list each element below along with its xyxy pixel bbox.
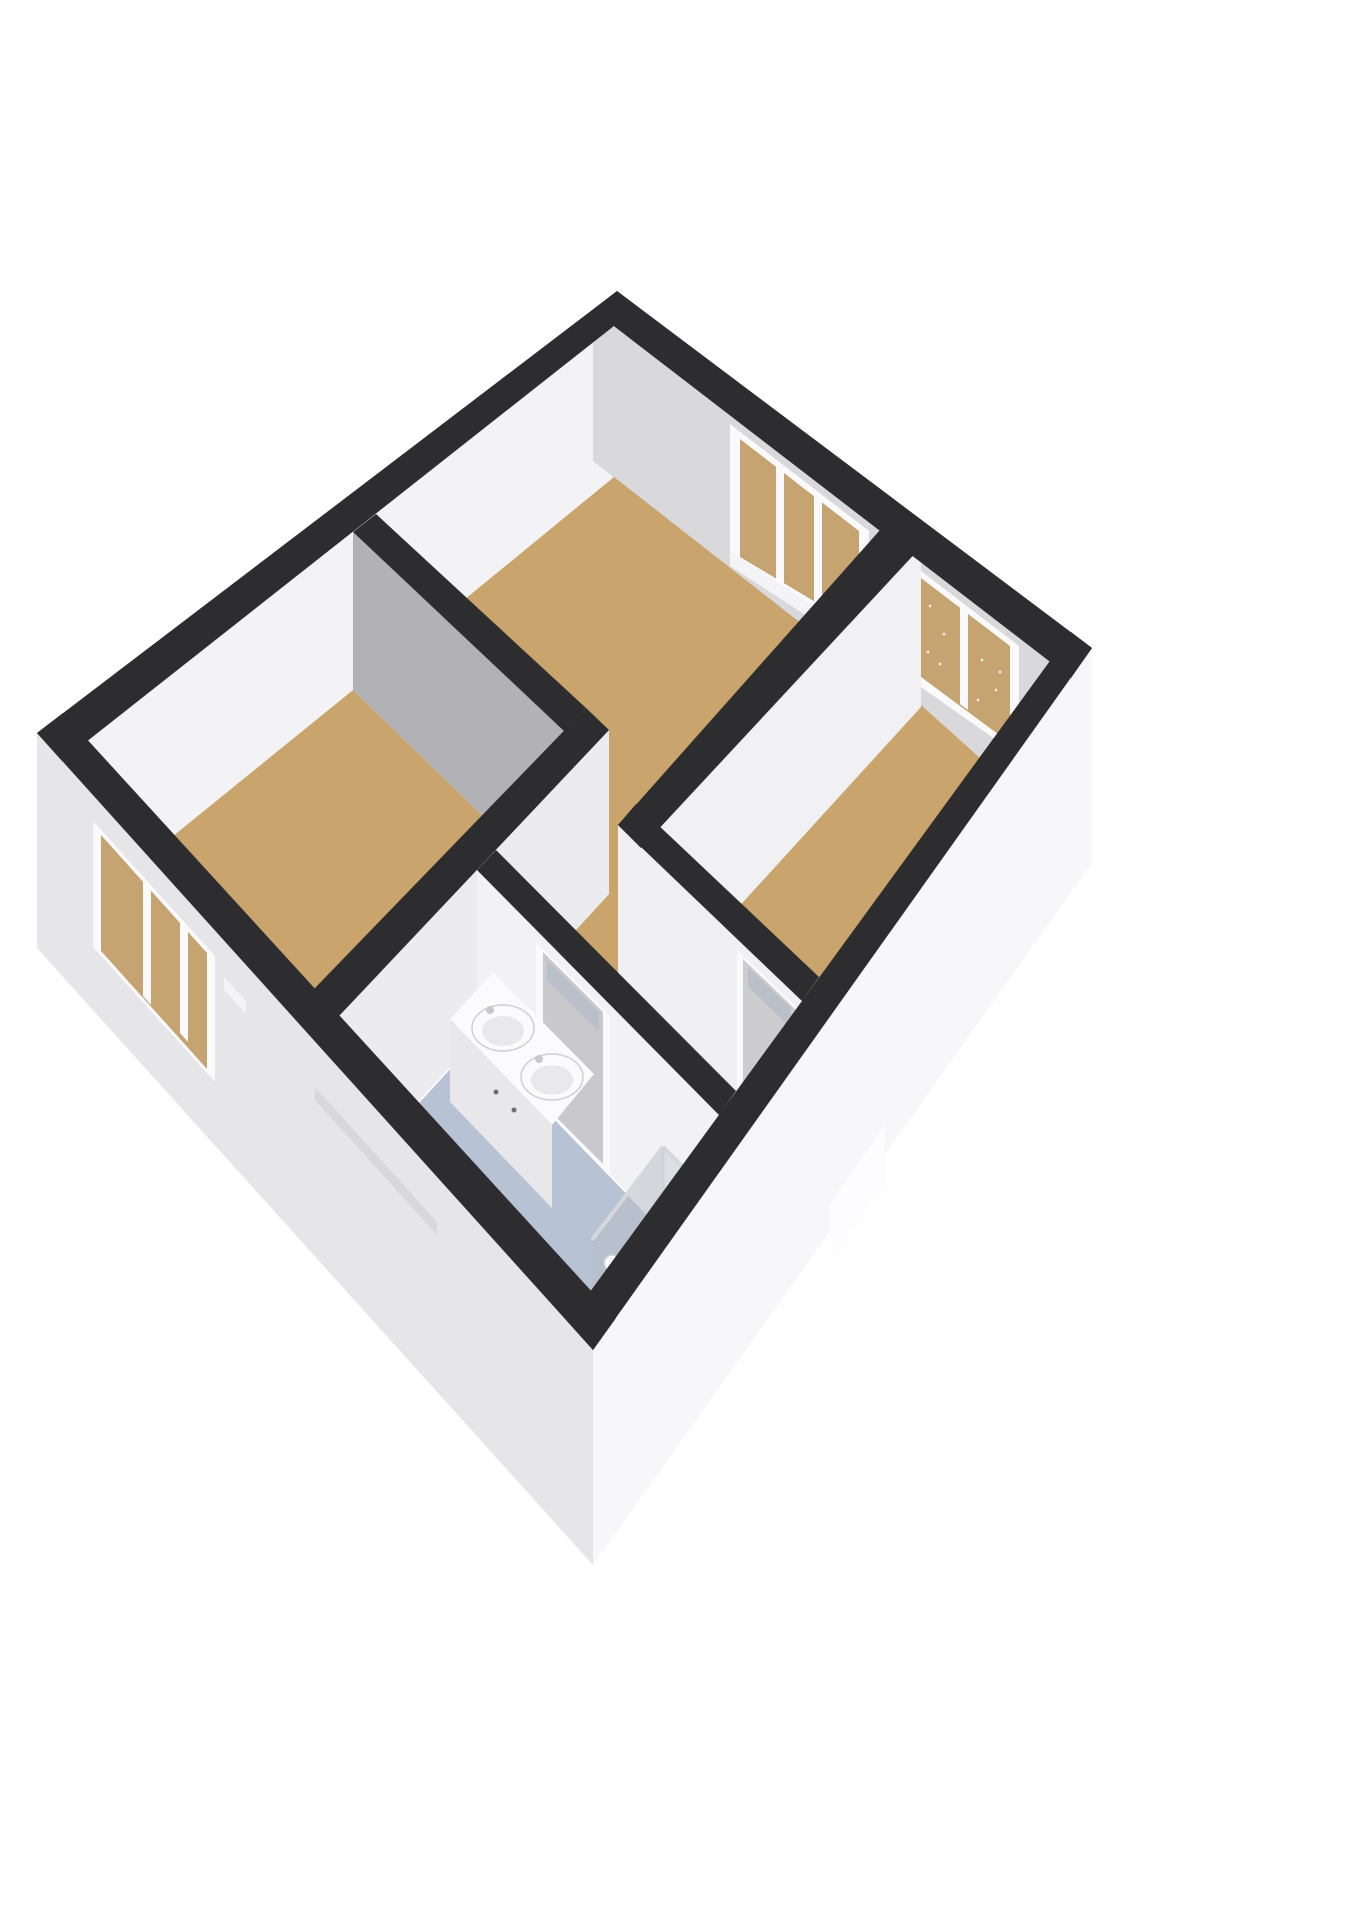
sink-bowl [482,1016,524,1046]
sink-bowl [531,1065,573,1095]
window-mullion [814,493,822,613]
window-mullion [776,464,784,590]
window-mullion [143,878,151,1005]
floorplan-3d-render [0,0,1358,1920]
window-mullion [960,605,968,710]
sink-left [472,1005,534,1051]
window-mullion [180,919,188,1042]
sink-faucet [486,1006,494,1014]
sink-faucet [535,1055,543,1063]
vanity-knob [494,1090,499,1095]
sink-right [521,1054,583,1100]
vanity-knob [512,1108,517,1113]
floorplan-canvas [0,0,1358,1920]
